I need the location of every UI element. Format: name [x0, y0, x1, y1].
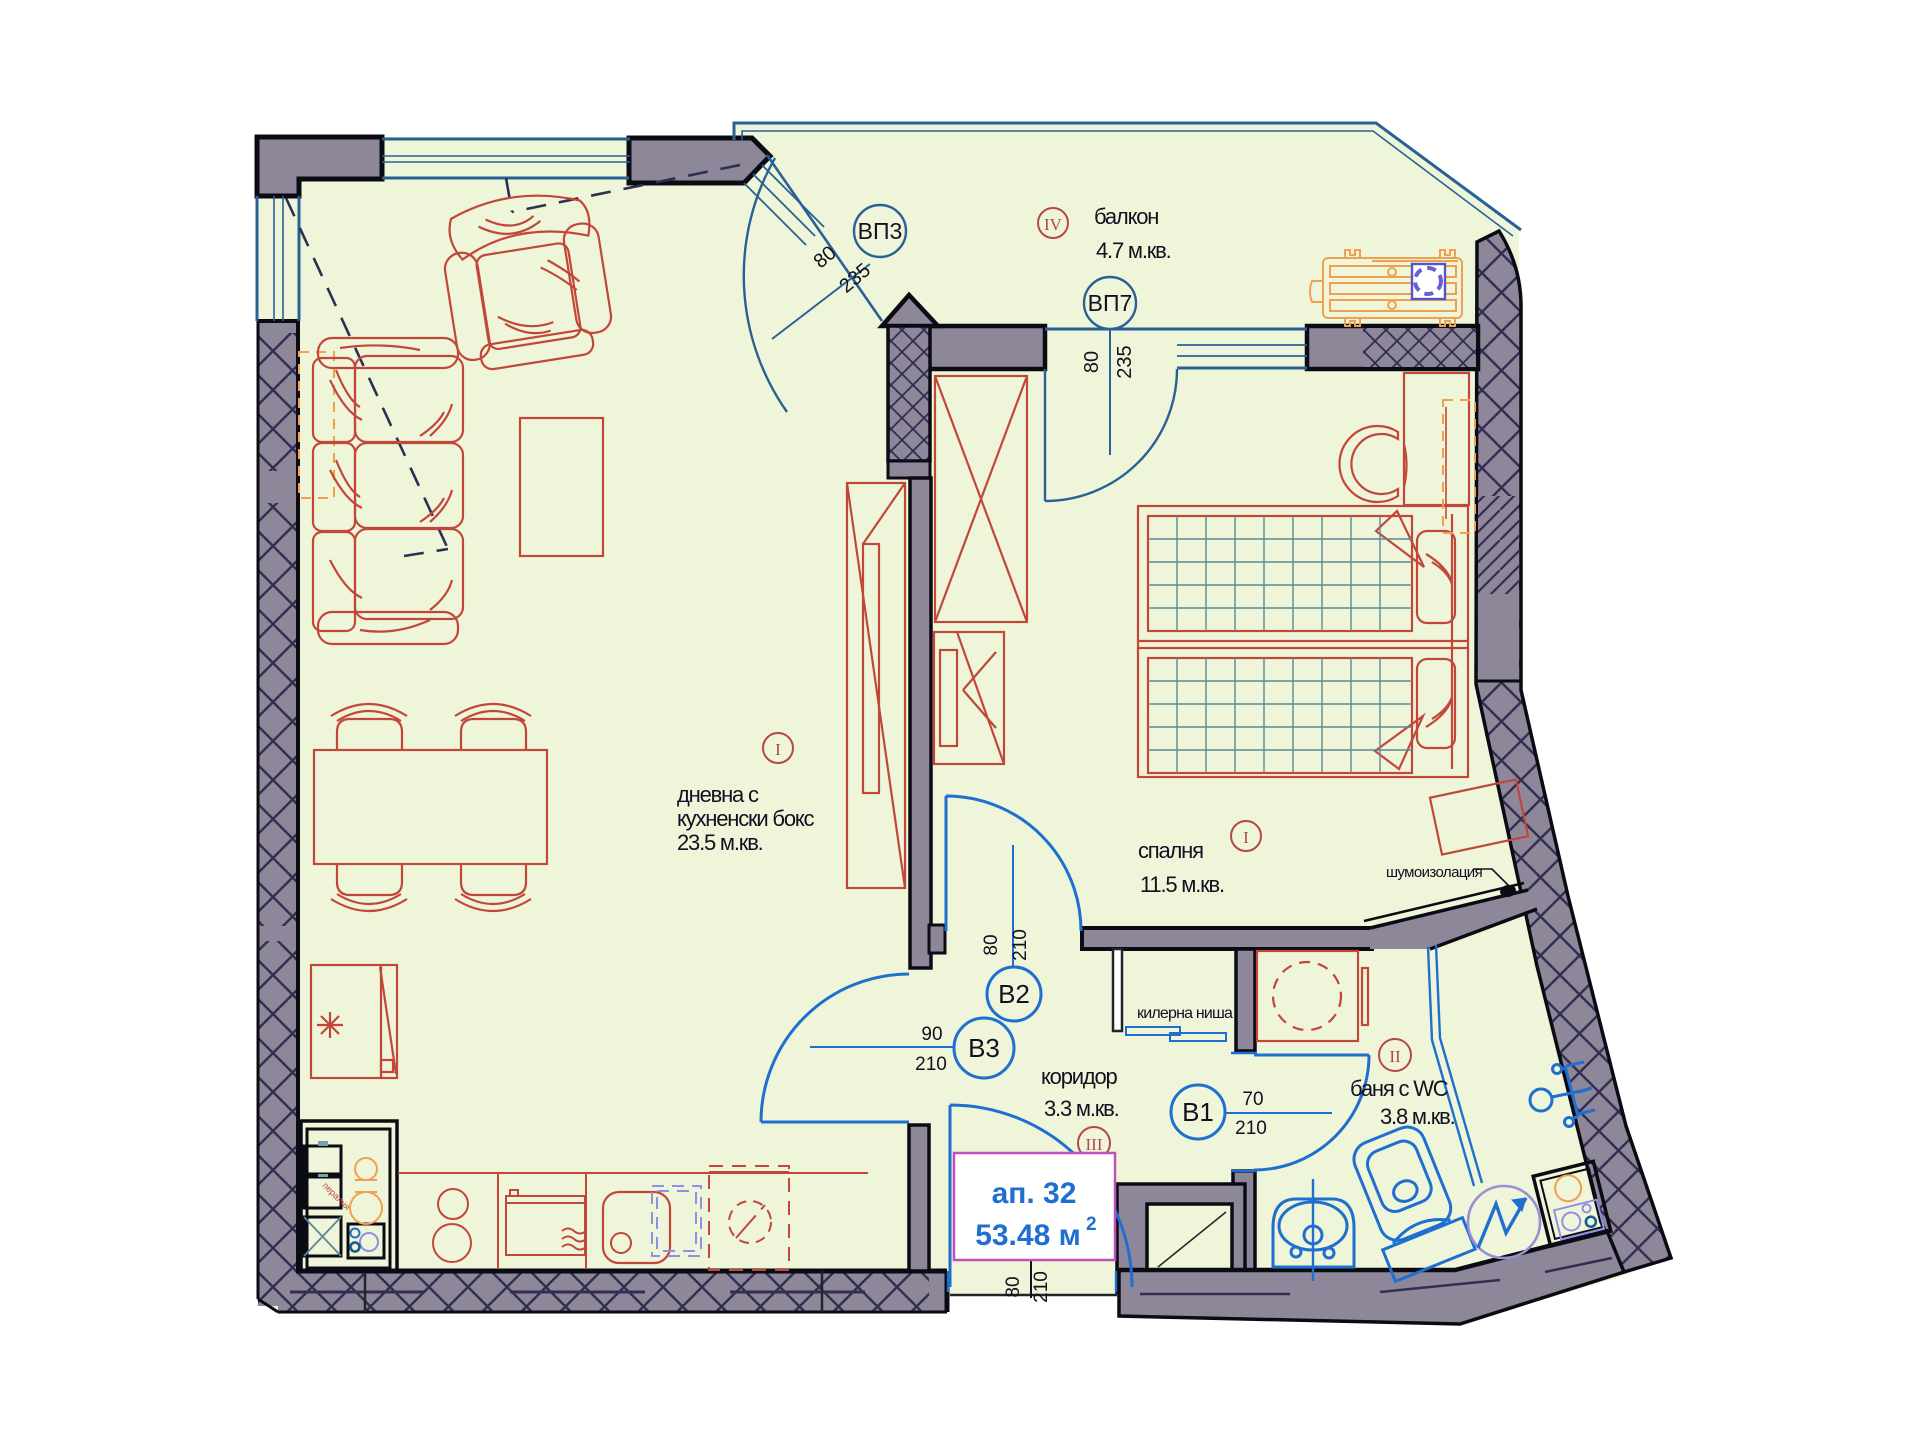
svg-text:3.8 м.кв.: 3.8 м.кв. [1380, 1104, 1455, 1129]
svg-text:коридор: коридор [1041, 1064, 1118, 1089]
svg-text:В3: В3 [968, 1033, 1000, 1063]
svg-text:70: 70 [1242, 1089, 1263, 1110]
svg-text:кухненски бокс: кухненски бокс [677, 806, 815, 831]
svg-text:дневна с: дневна с [677, 782, 759, 807]
svg-text:В2: В2 [998, 979, 1030, 1009]
svg-text:210: 210 [1235, 1118, 1267, 1139]
svg-text:ВП7: ВП7 [1088, 290, 1133, 316]
svg-text:80: 80 [981, 934, 1002, 955]
svg-text:В1: В1 [1182, 1097, 1214, 1127]
svg-text:спалня: спалня [1138, 838, 1203, 863]
svg-text:баня с WC: баня с WC [1350, 1076, 1449, 1101]
svg-text:шумоизолация: шумоизолация [1386, 864, 1483, 881]
svg-text:210: 210 [1031, 1271, 1052, 1303]
svg-text:балкон: балкон [1094, 204, 1158, 229]
svg-text:ВП3: ВП3 [858, 218, 903, 244]
svg-text:210: 210 [915, 1054, 947, 1075]
svg-text:210: 210 [1010, 929, 1031, 961]
svg-text:IV: IV [1044, 215, 1063, 234]
svg-text:II: II [1389, 1047, 1401, 1066]
svg-text:235: 235 [1114, 345, 1136, 378]
svg-text:11.5 м.кв.: 11.5 м.кв. [1140, 872, 1224, 897]
svg-text:ап. 32: ап. 32 [992, 1177, 1077, 1210]
svg-text:53.48 м: 53.48 м [975, 1219, 1081, 1252]
svg-text:3.3 м.кв.: 3.3 м.кв. [1044, 1096, 1119, 1121]
svg-text:III: III [1086, 1135, 1103, 1154]
svg-text:80: 80 [1081, 351, 1103, 373]
svg-text:23.5 м.кв.: 23.5 м.кв. [677, 830, 763, 855]
svg-text:90: 90 [921, 1024, 942, 1045]
svg-text:килерна ниша: килерна ниша [1137, 1005, 1233, 1022]
svg-text:4.7 м.кв.: 4.7 м.кв. [1096, 238, 1171, 263]
svg-text:80: 80 [1003, 1276, 1024, 1297]
svg-text:I: I [775, 740, 781, 759]
svg-text:2: 2 [1086, 1214, 1097, 1235]
svg-text:I: I [1243, 828, 1249, 847]
